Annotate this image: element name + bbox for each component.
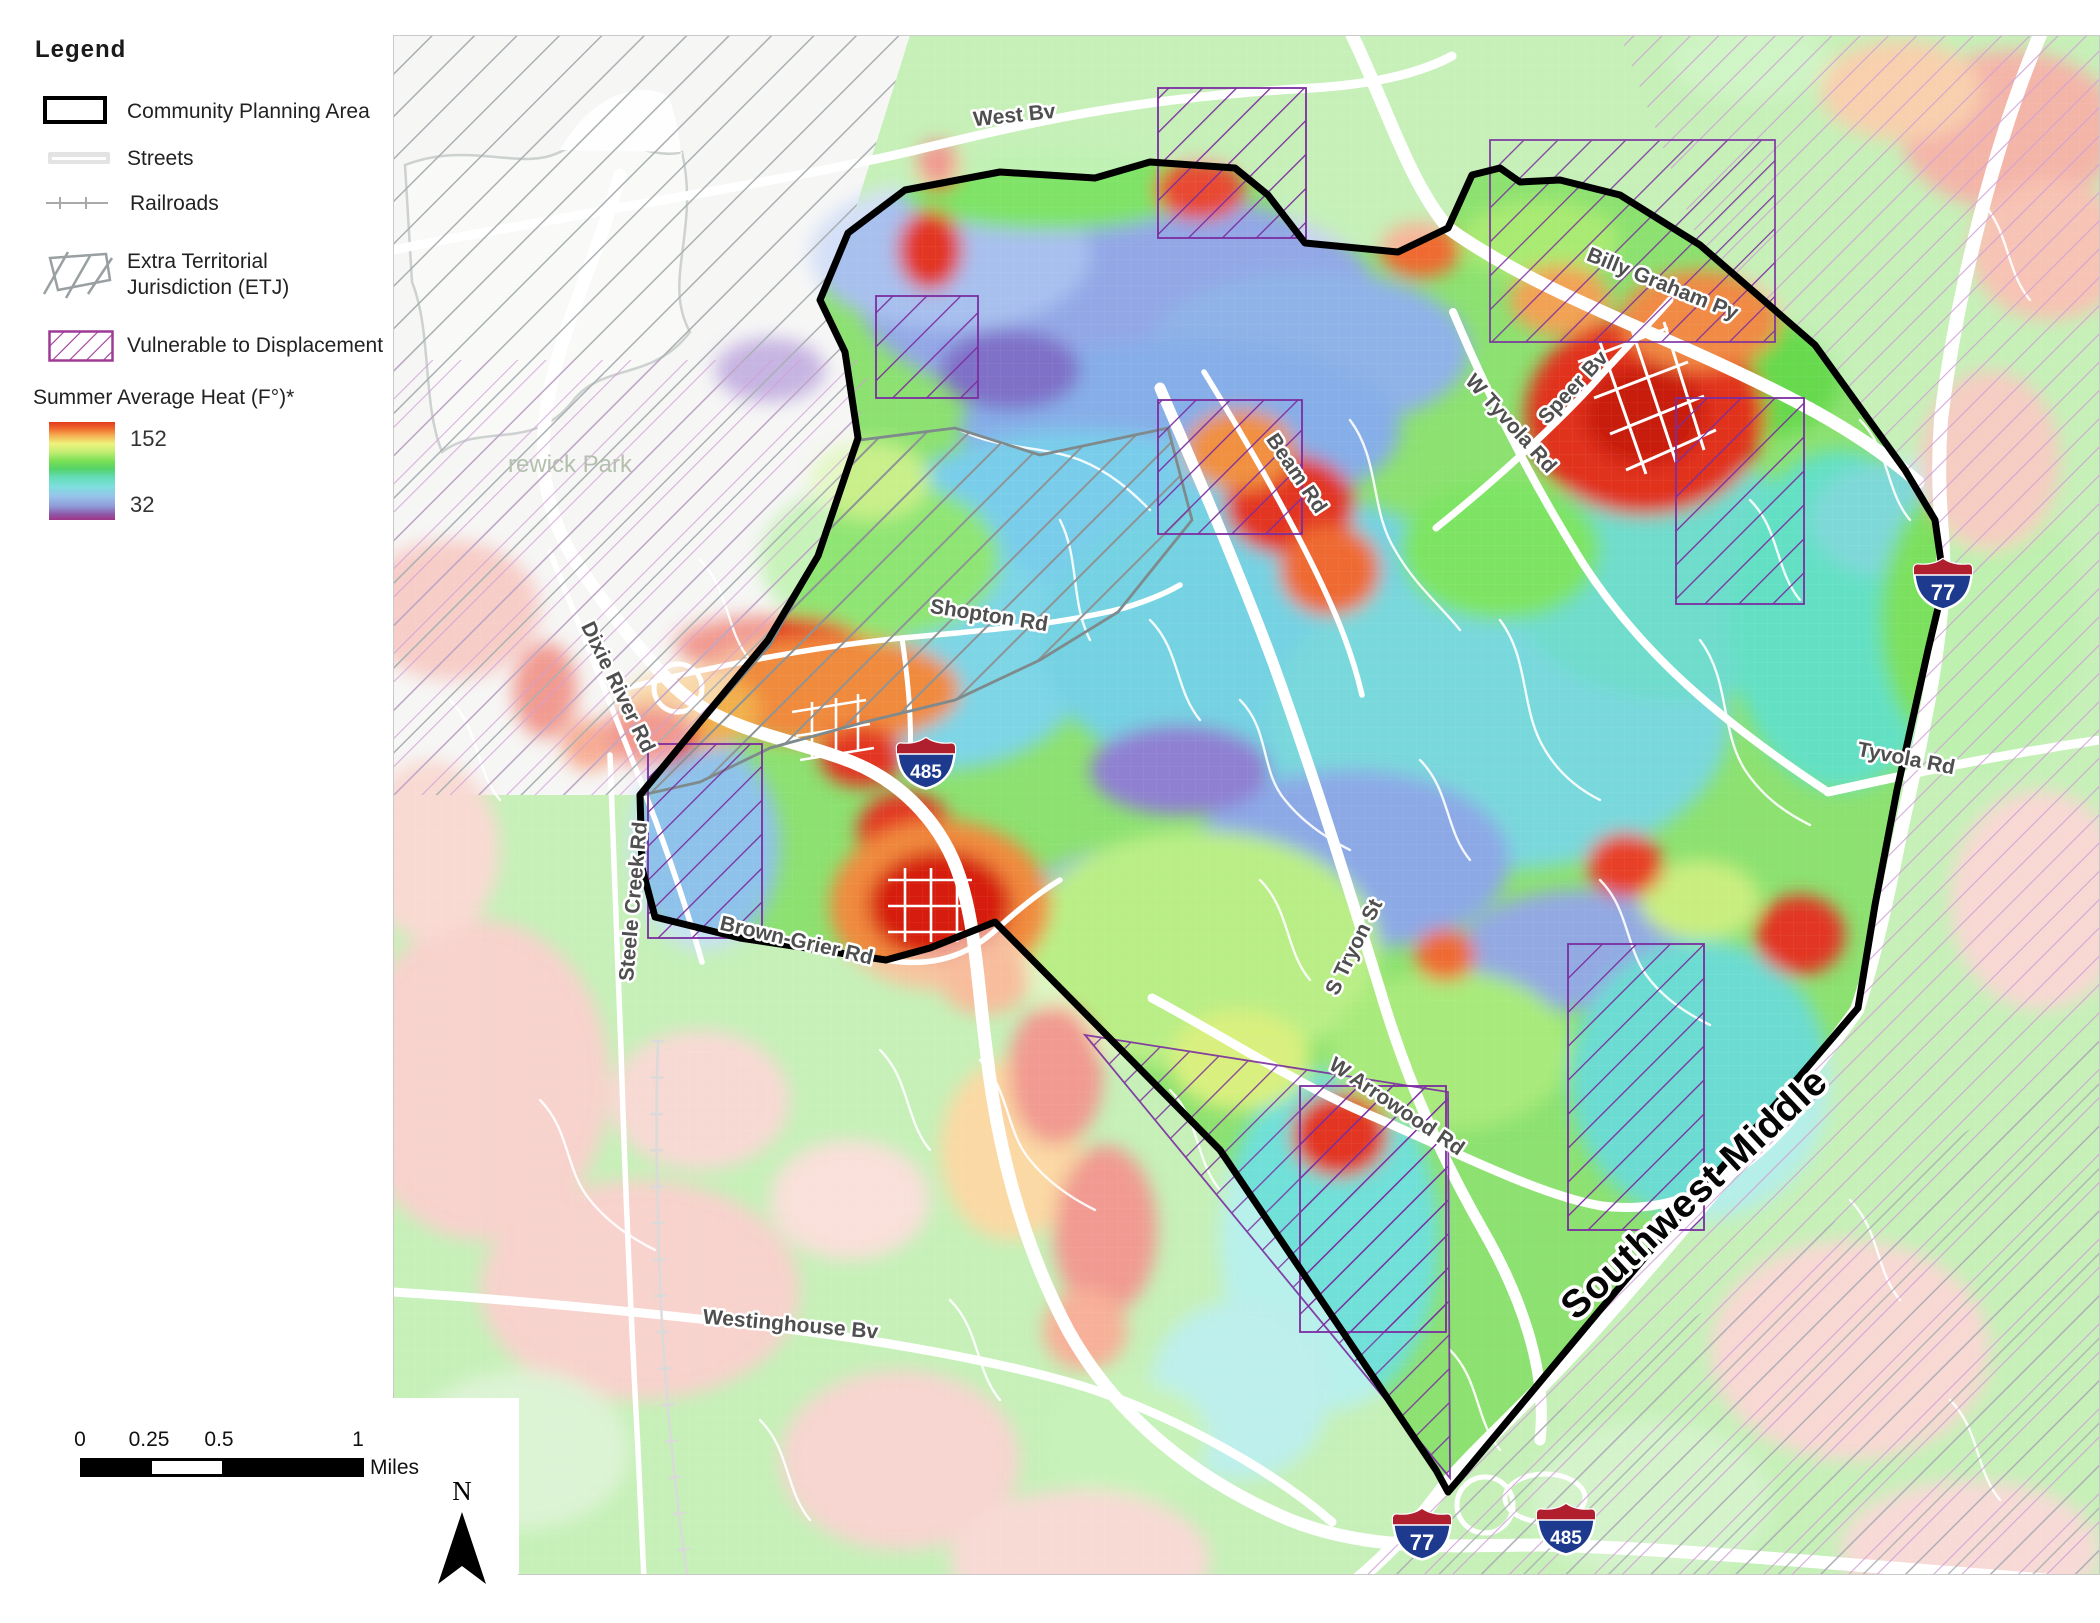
north-arrow-label: N	[452, 1476, 472, 1506]
scale-tick-1: 1	[352, 1428, 364, 1452]
vulnerable-rect-5	[1676, 398, 1804, 604]
north-arrow-glyph	[438, 1512, 486, 1584]
scale-tick-05: 0.5	[204, 1428, 233, 1452]
legend-label-etj-line2: Jurisdiction (ETJ)	[127, 276, 289, 300]
heat-map-page: 485 77 77 485 West Bv	[0, 0, 2100, 1623]
legend-label-streets: Streets	[127, 147, 194, 171]
vulnerable-rect-2	[876, 296, 978, 398]
legend-title: Legend	[35, 36, 126, 64]
legend-label-etj-line1: Extra Territorial	[127, 250, 268, 274]
legend-swatch-etj	[40, 248, 120, 300]
legend-swatch-railroads	[44, 194, 112, 212]
shield-i77-east-number: 77	[1931, 580, 1955, 605]
map: 485 77 77 485 West Bv	[0, 0, 2100, 1623]
shield-i77-south-number: 77	[1410, 1530, 1434, 1555]
scale-unit-label: Miles	[370, 1456, 419, 1480]
legend-swatch-streets	[48, 152, 110, 164]
vulnerable-rect-4	[648, 744, 762, 938]
legend-label-railroads: Railroads	[130, 192, 219, 216]
shield-i485-west-number: 485	[910, 762, 942, 783]
shield-i485-south-number: 485	[1550, 1528, 1582, 1549]
legend-label-vulnerable: Vulnerable to Displacement	[127, 334, 383, 358]
north-arrow: N	[428, 1476, 496, 1596]
heat-max-value: 152	[130, 426, 167, 452]
legend-swatch-vulnerable	[48, 330, 114, 362]
heat-legend-title: Summer Average Heat (F°)*	[33, 386, 294, 410]
scale-tick-025: 0.25	[129, 1428, 170, 1452]
heat-color-ramp	[49, 422, 115, 520]
park-label: rewick Park	[508, 451, 633, 478]
legend-swatch-planning-area	[43, 96, 107, 124]
legend-label-planning-area: Community Planning Area	[127, 100, 370, 124]
heat-min-value: 32	[130, 492, 154, 518]
scale-tick-0: 0	[74, 1428, 86, 1452]
scale-bar-graphic	[80, 1458, 364, 1477]
